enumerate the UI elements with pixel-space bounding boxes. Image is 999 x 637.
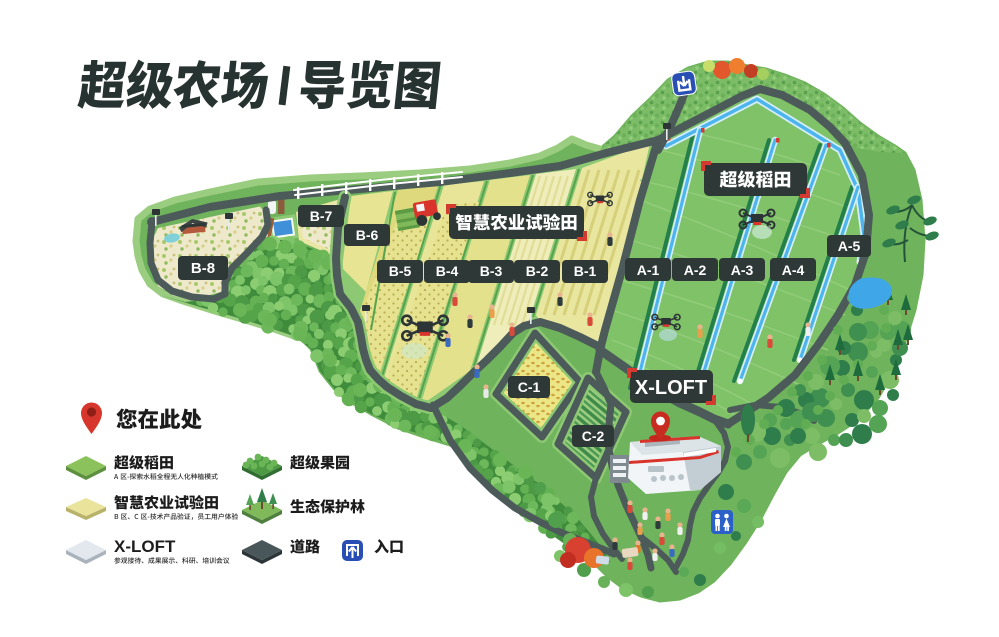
- svg-text:C-2: C-2: [582, 428, 605, 444]
- svg-text:A-5: A-5: [838, 238, 861, 254]
- svg-text:B-6: B-6: [356, 227, 379, 243]
- svg-text:B-8: B-8: [191, 260, 215, 277]
- svg-text:X-LOFT: X-LOFT: [635, 377, 707, 399]
- svg-text:B-1: B-1: [574, 263, 597, 279]
- svg-text:X-LOFT: X-LOFT: [114, 537, 176, 556]
- svg-text:A-1: A-1: [637, 262, 660, 278]
- svg-text:A-3: A-3: [731, 262, 754, 278]
- svg-text:B-5: B-5: [389, 263, 412, 279]
- svg-text:A-4: A-4: [782, 262, 805, 278]
- svg-text:C-1: C-1: [518, 379, 541, 395]
- svg-text:B-3: B-3: [480, 263, 503, 279]
- svg-text:B-7: B-7: [310, 208, 333, 224]
- svg-text:B-4: B-4: [436, 263, 459, 279]
- svg-text:B-2: B-2: [526, 263, 549, 279]
- svg-text:A-2: A-2: [684, 262, 707, 278]
